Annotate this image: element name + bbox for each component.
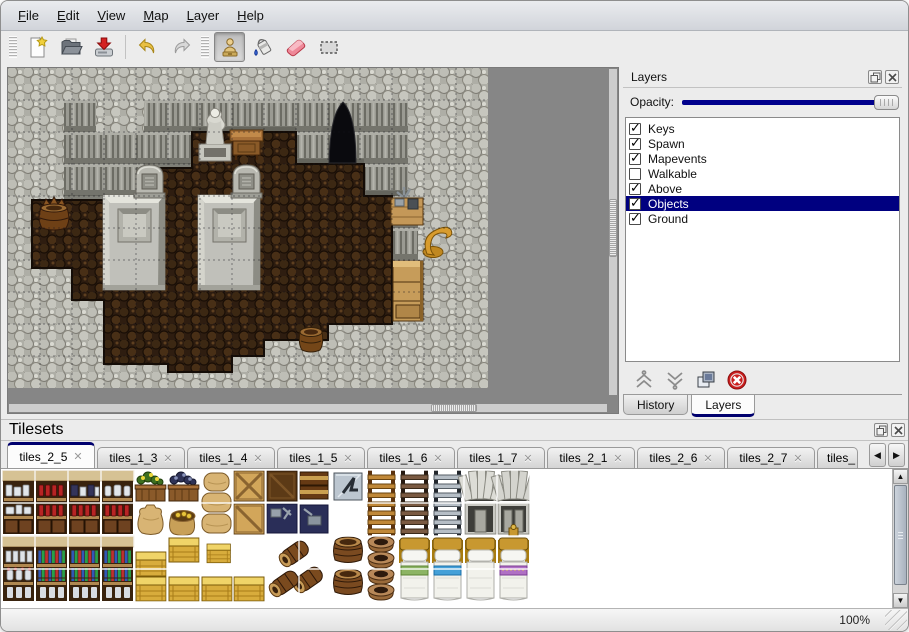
tileset-scroll-thumb[interactable] (894, 485, 907, 585)
tile-open-sack[interactable] (170, 511, 195, 536)
menu-map[interactable]: Map (134, 5, 177, 26)
tileset-tab[interactable]: tiles_1_6✕ (367, 447, 455, 468)
tile-sack[interactable] (138, 505, 163, 535)
tilesets-panel: Tilesets tiles_2_5✕ tiles_1_3✕ tiles_1_4… (1, 419, 908, 608)
close-tab-icon[interactable]: ✕ (73, 450, 82, 463)
tile-shelf-pots[interactable] (68, 470, 101, 534)
dock-tabs: History Layers (623, 394, 902, 419)
main-area: Layers Opacity: ✓Keys ✓Spawn ✓Mapevents (1, 63, 908, 419)
menubar: File Edit View Map Layer Help (1, 1, 908, 31)
barrel (299, 328, 322, 353)
layer-checkbox[interactable]: ✓ (629, 198, 641, 210)
tab-history[interactable]: History (623, 395, 688, 415)
scroll-down-button[interactable]: ▼ (893, 593, 908, 608)
float-panel-button[interactable] (874, 423, 888, 437)
arrow-right-icon: ▶ (893, 450, 900, 461)
opacity-slider-track[interactable] (682, 100, 896, 105)
close-icon (893, 425, 904, 436)
layer-actions (623, 365, 902, 394)
float-panel-button[interactable] (868, 70, 882, 84)
tileset-tab[interactable]: tiles_1_4✕ (187, 447, 275, 468)
layers-panel: Layers Opacity: ✓Keys ✓Spawn ✓Mapevents (623, 67, 902, 419)
redo-button[interactable] (165, 32, 196, 62)
menu-help[interactable]: Help (228, 5, 273, 26)
close-tab-icon[interactable]: ✕ (433, 452, 442, 465)
opacity-row: Opacity: (623, 88, 902, 115)
undo-button[interactable] (132, 32, 163, 62)
selection-rect-icon (317, 35, 341, 59)
tile-dark-flower-box[interactable] (168, 472, 199, 501)
gravestone (134, 165, 165, 198)
layer-row-walkable[interactable]: ✓Walkable (626, 166, 899, 181)
cabinet (393, 261, 423, 321)
paint-bucket-icon (251, 35, 275, 59)
save-map-button[interactable] (88, 32, 119, 62)
tile-flower-box[interactable] (135, 472, 166, 501)
tile-barrel-upright[interactable] (334, 537, 363, 595)
resize-grip[interactable] (885, 610, 907, 630)
tileset-tab[interactable]: tiles_1_7✕ (457, 447, 545, 468)
layer-row-spawn[interactable]: ✓Spawn (626, 136, 899, 151)
map-vertical-scrollbar[interactable] (609, 69, 617, 395)
layer-checkbox[interactable]: ✓ (629, 153, 641, 165)
stamp-person-icon (218, 35, 242, 59)
new-map-button[interactable] (22, 32, 53, 62)
table (230, 130, 263, 160)
layer-row-keys[interactable]: ✓Keys (626, 121, 899, 136)
tileset-tab[interactable]: tiles_1_5✕ (277, 447, 365, 468)
tileset-canvas[interactable] (2, 470, 530, 602)
tileset-tabbar: tiles_2_5✕ tiles_1_3✕ tiles_1_4✕ tiles_1… (1, 441, 908, 468)
tile-crate-dark[interactable] (267, 471, 297, 533)
toolbar-grip[interactable] (9, 36, 17, 58)
close-panel-button[interactable] (891, 423, 905, 437)
eraser-tool-button[interactable] (280, 32, 311, 62)
stamp-tool-button[interactable] (214, 32, 245, 62)
layers-list: ✓Keys ✓Spawn ✓Mapevents ✓Walkable ✓Above… (625, 117, 900, 362)
save-drive-icon (92, 35, 116, 59)
zoom-level: 100% (839, 613, 870, 627)
layers-panel-title: Layers (631, 70, 865, 84)
new-page-icon (26, 35, 50, 59)
tileset-tab[interactable]: tiles_2_1✕ (547, 447, 635, 468)
close-tab-icon[interactable]: ✕ (703, 452, 712, 465)
scroll-tabs-right-button[interactable]: ▶ (888, 443, 905, 467)
fill-tool-button[interactable] (247, 32, 278, 62)
menu-view[interactable]: View (88, 5, 134, 26)
scroll-up-button[interactable]: ▲ (893, 469, 908, 484)
redo-arrow-icon (169, 35, 193, 59)
layer-checkbox[interactable]: ✓ (629, 183, 641, 195)
layer-row-mapevents[interactable]: ✓Mapevents (626, 151, 899, 166)
opacity-label: Opacity: (630, 95, 674, 109)
eraser-icon (284, 35, 308, 59)
close-tab-icon[interactable]: ✕ (793, 452, 802, 465)
tileset-vertical-scrollbar[interactable]: ▲ ▼ (892, 469, 908, 608)
toolbar-separator (125, 35, 126, 59)
lower-layer-button[interactable] (663, 368, 687, 392)
layer-row-above[interactable]: ✓Above (626, 181, 899, 196)
layer-row-objects[interactable]: ✓Objects (626, 196, 899, 211)
layer-checkbox[interactable]: ✓ (629, 213, 641, 225)
tab-layers[interactable]: Layers (691, 395, 755, 417)
tile-shelf-dishes[interactable] (2, 470, 35, 534)
float-icon (876, 425, 887, 436)
tile-metal-sign[interactable] (334, 473, 362, 500)
menu-file[interactable]: File (9, 5, 48, 26)
tile-shelf-jars[interactable] (101, 470, 134, 534)
map-canvas[interactable] (7, 67, 619, 414)
chevron-up-icon (633, 369, 655, 391)
tileset-tab[interactable]: tiles_ (817, 447, 858, 468)
map-horizontal-scrollbar[interactable] (9, 404, 607, 412)
arrow-down-icon: ▼ (897, 596, 905, 605)
statusbar: 100% (1, 608, 908, 631)
delete-icon (726, 369, 748, 391)
undo-arrow-icon (136, 35, 160, 59)
close-tab-icon[interactable]: ✕ (253, 452, 262, 465)
tileset-view: ▲ ▼ (1, 468, 908, 608)
tile-shelf-bottles[interactable] (35, 470, 68, 534)
open-folder-icon (59, 35, 83, 59)
gravestone (231, 165, 262, 198)
tileset-tab[interactable]: tiles_2_7✕ (727, 447, 815, 468)
layer-checkbox[interactable]: ✓ (629, 123, 641, 135)
close-icon (887, 72, 898, 83)
raise-layer-button[interactable] (632, 368, 656, 392)
tab-scroll-buttons: ◀ ▶ (867, 443, 905, 467)
layer-checkbox[interactable]: ✓ (629, 138, 641, 150)
arrow-left-icon: ◀ (874, 450, 881, 461)
map-vscroll-thumb[interactable] (609, 199, 617, 257)
toolbar (1, 31, 908, 63)
close-tab-icon[interactable]: ✕ (343, 452, 352, 465)
delete-layer-button[interactable] (725, 368, 749, 392)
tileset-tab[interactable]: tiles_2_6✕ (637, 447, 725, 468)
close-tab-icon[interactable]: ✕ (613, 452, 622, 465)
toolbar-grip[interactable] (201, 36, 209, 58)
app-window: File Edit View Map Layer Help (0, 0, 909, 632)
close-tab-icon[interactable]: ✕ (523, 452, 532, 465)
tilesets-title: Tilesets (9, 421, 871, 439)
layers-panel-titlebar: Layers (623, 67, 902, 88)
layer-checkbox[interactable]: ✓ (629, 168, 641, 180)
close-tab-icon[interactable]: ✕ (163, 452, 172, 465)
tilesets-titlebar: Tilesets (1, 420, 908, 441)
opacity-slider[interactable] (682, 94, 899, 110)
tile-clay-pots[interactable] (368, 536, 394, 600)
menu-edit[interactable]: Edit (48, 5, 88, 26)
close-panel-button[interactable] (885, 70, 899, 84)
float-icon (870, 72, 881, 83)
duplicate-layer-button[interactable] (694, 368, 718, 392)
stone-platform (103, 195, 165, 290)
layer-row-ground[interactable]: ✓Ground (626, 211, 899, 226)
stone-platform (198, 195, 260, 290)
tileset-tab[interactable]: tiles_2_5✕ (7, 442, 95, 468)
arrow-up-icon: ▲ (897, 472, 905, 481)
tileset-tab[interactable]: tiles_1_3✕ (97, 447, 185, 468)
menu-layer[interactable]: Layer (178, 5, 229, 26)
scroll-tabs-left-button[interactable]: ◀ (869, 443, 886, 467)
map-hscroll-thumb[interactable] (431, 404, 477, 412)
opacity-slider-handle[interactable] (874, 95, 899, 110)
open-map-button[interactable] (55, 32, 86, 62)
duplicate-icon (695, 369, 717, 391)
map-scene[interactable] (8, 68, 488, 388)
rect-select-tool-button[interactable] (313, 32, 344, 62)
chevron-down-icon (664, 369, 686, 391)
